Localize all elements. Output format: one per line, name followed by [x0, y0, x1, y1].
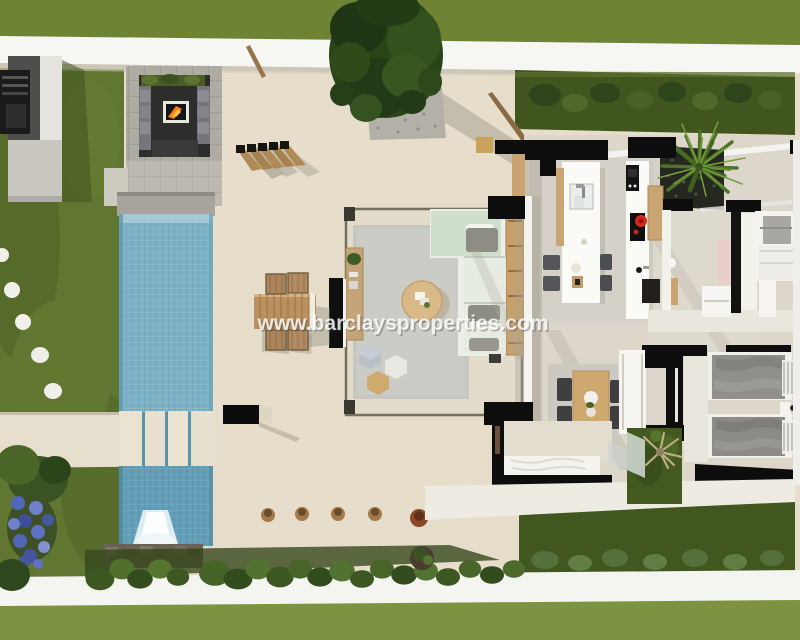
svg-text:www.barclaysproperties.com: www.barclaysproperties.com — [257, 312, 549, 335]
